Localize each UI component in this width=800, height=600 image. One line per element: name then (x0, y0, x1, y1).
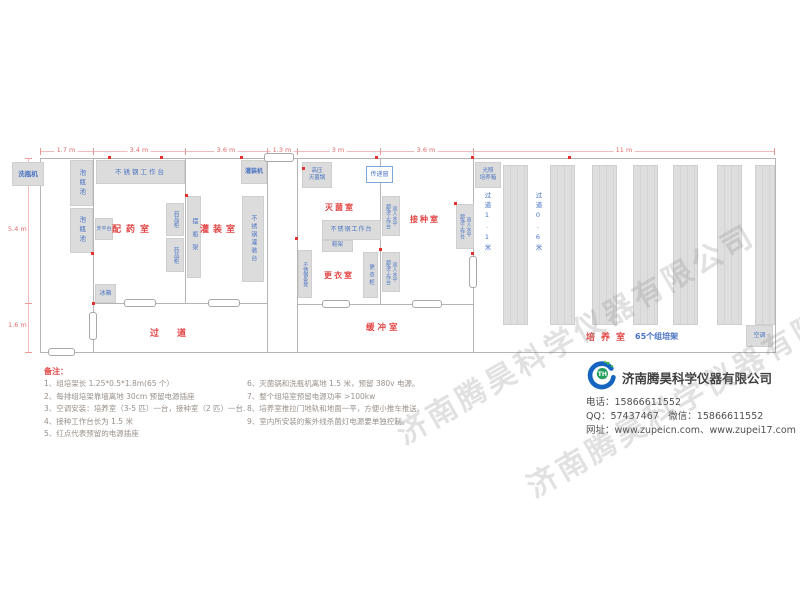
note-line: 6、灭菌锅和洗瓶机离地 1.5 米，预留 380v 电源。 (247, 378, 424, 391)
equip-light-incubator: 光照 培养箱 (475, 162, 501, 188)
culture-rack-6 (717, 165, 742, 325)
power-outlet-dot (160, 156, 163, 159)
equip-label: 药品柜 (171, 211, 178, 228)
culture-rack-3 (592, 165, 617, 325)
door-wash-corridor (89, 312, 97, 340)
dim-left-1: 5.4 m (8, 225, 27, 233)
dim-top-6: 3.6 m (415, 146, 438, 154)
power-outlet-dot (185, 194, 188, 197)
equip-medicine-cabinet-2: 药品柜 (166, 238, 184, 272)
room-label-guanzhuang: 灌装室 (200, 222, 239, 235)
equip-label: 不锈钢条凳 (302, 262, 309, 287)
dim-tick (297, 148, 298, 155)
note-line: 9、室内所安装的紫外线杀菌灯电源要单独控制。 (247, 416, 424, 429)
equip-label: 双人水平 超净工作台 (385, 260, 398, 285)
wall-left-building-right (267, 158, 268, 352)
wall-top (40, 158, 775, 159)
equip-pass-window: 传递窗 (366, 166, 393, 183)
equip-balance-table: 天平台 (95, 218, 113, 240)
door-gengyi (322, 300, 350, 308)
room-label-miejun: 灭菌室 (325, 202, 355, 213)
aisle-label-1: 过道1.1米 (482, 192, 492, 302)
power-outlet-dot (240, 156, 243, 159)
equip-label: 药品柜 (171, 247, 178, 264)
equip-label: 不锈钢工作台 (330, 226, 372, 234)
equip-clean-bench-2: 双人水平 超净工作台 (382, 252, 400, 292)
equip-label: 泡瓶池 (77, 216, 85, 245)
dim-top-1: 1.7 m (55, 146, 78, 154)
wall-mid-building-right (473, 158, 474, 352)
equip-label: 不锈钢工作台 (115, 168, 166, 176)
aisle-label-2: 过道0.6米 (533, 192, 543, 302)
svg-text:TH: TH (598, 371, 607, 378)
wall-bottom (40, 352, 776, 353)
equip-fridge: 冰箱 (95, 284, 116, 303)
equip-label: 灌装机 (245, 168, 263, 176)
dim-tick (25, 158, 32, 159)
power-outlet-dot (92, 302, 95, 305)
equip-label: 高压 灭菌锅 (309, 168, 326, 182)
power-outlet-dot (471, 156, 474, 159)
room-label-huanchong: 缓冲室 (366, 321, 401, 333)
room-label-peiyang-count: 65个组培架 (635, 331, 678, 342)
dim-tick (774, 148, 775, 155)
note-line: 8、培养室推拉门地轨和地面一平，方便小推车推送。 (247, 403, 424, 416)
wall-peiyao-guanzhuang (185, 158, 186, 303)
dim-tick (473, 148, 474, 155)
wall-corridor-top (93, 303, 267, 304)
equip-soak-pool-1: 泡瓶池 (70, 160, 93, 206)
room-label-gengyi: 更衣室 (324, 270, 354, 281)
dim-top-2: 3.4 m (128, 146, 151, 154)
equip-medicine-cabinet-1: 药品柜 (166, 203, 184, 236)
door-bottom-left (48, 348, 75, 356)
equip-label: 不锈钢灌装台 (249, 215, 257, 263)
dim-top-5: 3 m (330, 146, 347, 154)
equip-clean-bench-1: 双人水平 超净工作台 (382, 196, 400, 236)
door-guanzhuang (208, 299, 240, 307)
equip-filling-machine: 灌装机 (241, 160, 267, 184)
dim-tick (25, 352, 32, 353)
equip-autoclave: 高压 灭菌锅 (302, 162, 332, 188)
equip-air-conditioner: 空调 (746, 325, 773, 347)
door-jiezhong-peiyang (469, 256, 477, 288)
room-label-jiezhong: 接种室 (410, 214, 440, 225)
dim-top-3: 3.6 m (215, 146, 238, 154)
power-outlet-dot (375, 156, 378, 159)
equip-steel-bench: 不锈钢条凳 (298, 250, 312, 298)
dim-tick (25, 303, 32, 304)
culture-rack-4 (633, 165, 658, 325)
note-line: 4、接种工作台长为 1.5 米 (44, 416, 245, 429)
floor-plan-page: { "dims": { "top": ["1.7 m","3.4 m","3.6… (0, 0, 800, 600)
equip-label: 摆瓶架 (190, 218, 198, 257)
equip-label: 泡瓶池 (77, 169, 85, 198)
room-label-peiyang: 培养室 (586, 330, 631, 343)
power-outlet-dot (108, 156, 111, 159)
equip-label: 天平台 (96, 226, 111, 233)
power-outlet-dot (568, 156, 571, 159)
wall-left (40, 158, 41, 352)
culture-rack-1 (503, 165, 528, 325)
door-jiezhong-buffer (412, 300, 442, 308)
equip-label: 传递窗 (370, 171, 388, 179)
power-outlet-dot (471, 252, 474, 255)
note-line: 5、红点代表预留的电源插座 (44, 428, 245, 441)
power-outlet-dot (379, 248, 382, 251)
power-outlet-dot (91, 252, 94, 255)
dim-tick (93, 148, 94, 155)
dimension-line-left (28, 158, 29, 353)
notes-column-2: 6、灭菌锅和洗瓶机离地 1.5 米，预留 380v 电源。 7、整个组培室预留电… (247, 378, 424, 428)
room-label-guodao: 过道 (150, 326, 204, 339)
equip-label: 更衣柜 (367, 264, 374, 287)
room-label-peiyao: 配药室 (112, 222, 154, 235)
equip-label: 双人水平 超净工作台 (385, 204, 398, 229)
company-name: 济南腾昊科学仪器有限公司 (622, 368, 772, 387)
culture-rack-5 (673, 165, 698, 325)
power-outlet-dot (302, 167, 305, 170)
equip-bottle-washer: 洗瓶机 (12, 162, 44, 186)
equip-label: 鞋架 (332, 242, 343, 249)
notes-column-1: 1、组培架长 1.25*0.5*1.8m(65 个） 2、每排组培架靠墙离地 3… (44, 378, 245, 441)
door-peiyao (124, 299, 156, 307)
dim-top-7: 11 m (614, 146, 635, 154)
equip-clean-bench-3: 双人水平 超净工作台 (456, 204, 474, 249)
equip-filling-table: 不锈钢灌装台 (242, 196, 264, 282)
note-line: 7、整个组培室预留电源功率 >100kw (247, 391, 424, 404)
equip-label: 洗瓶机 (18, 170, 38, 178)
equip-label: 空调 (753, 332, 765, 340)
company-logo-icon: TH (586, 360, 616, 390)
equip-wardrobe: 更衣柜 (363, 252, 378, 298)
note-line: 2、每排组培架靠墙离地 30cm 预留电源插座 (44, 391, 245, 404)
company-phone: 电话：15866611552 (586, 394, 681, 408)
equip-label: 冰箱 (99, 290, 111, 298)
notes-title: 备注： (44, 366, 68, 377)
power-outlet-dot (295, 237, 298, 240)
dim-tick (40, 148, 41, 155)
floor-plan: 1.7 m 3.4 m 3.6 m 1.3 m 3 m 3.6 m 11 m 5… (0, 0, 800, 600)
culture-rack-2 (550, 165, 575, 325)
culture-rack-7 (755, 165, 775, 325)
equip-shoe-rack: 鞋架 (322, 240, 353, 252)
equip-label: 双人水平 超净工作台 (459, 214, 472, 239)
equip-worktable-peiyao: 不锈钢工作台 (96, 160, 185, 184)
note-line: 3、空调安装：培养室（3-5 匹）一台，接种室（2 匹）一台. (44, 403, 245, 416)
company-website: 网址：www.zupeicn.com、www.zupei17.com (586, 422, 796, 436)
equip-bottle-rack: 摆瓶架 (187, 196, 201, 278)
equip-worktable-miejun: 不锈钢工作台 (322, 220, 381, 240)
dim-tick (185, 148, 186, 155)
company-qq-wechat: QQ：57437467 微信：15866611552 (586, 408, 763, 422)
equip-soak-pool-2: 泡瓶池 (70, 208, 93, 253)
note-line: 1、组培架长 1.25*0.5*1.8m(65 个） (44, 378, 245, 391)
door-top-entrance (264, 153, 294, 162)
dim-tick (380, 148, 381, 155)
equip-label: 光照 培养箱 (480, 168, 497, 182)
wall-right (775, 158, 776, 353)
dim-left-2: 1.6 m (8, 321, 27, 329)
power-outlet-dot (454, 202, 457, 205)
